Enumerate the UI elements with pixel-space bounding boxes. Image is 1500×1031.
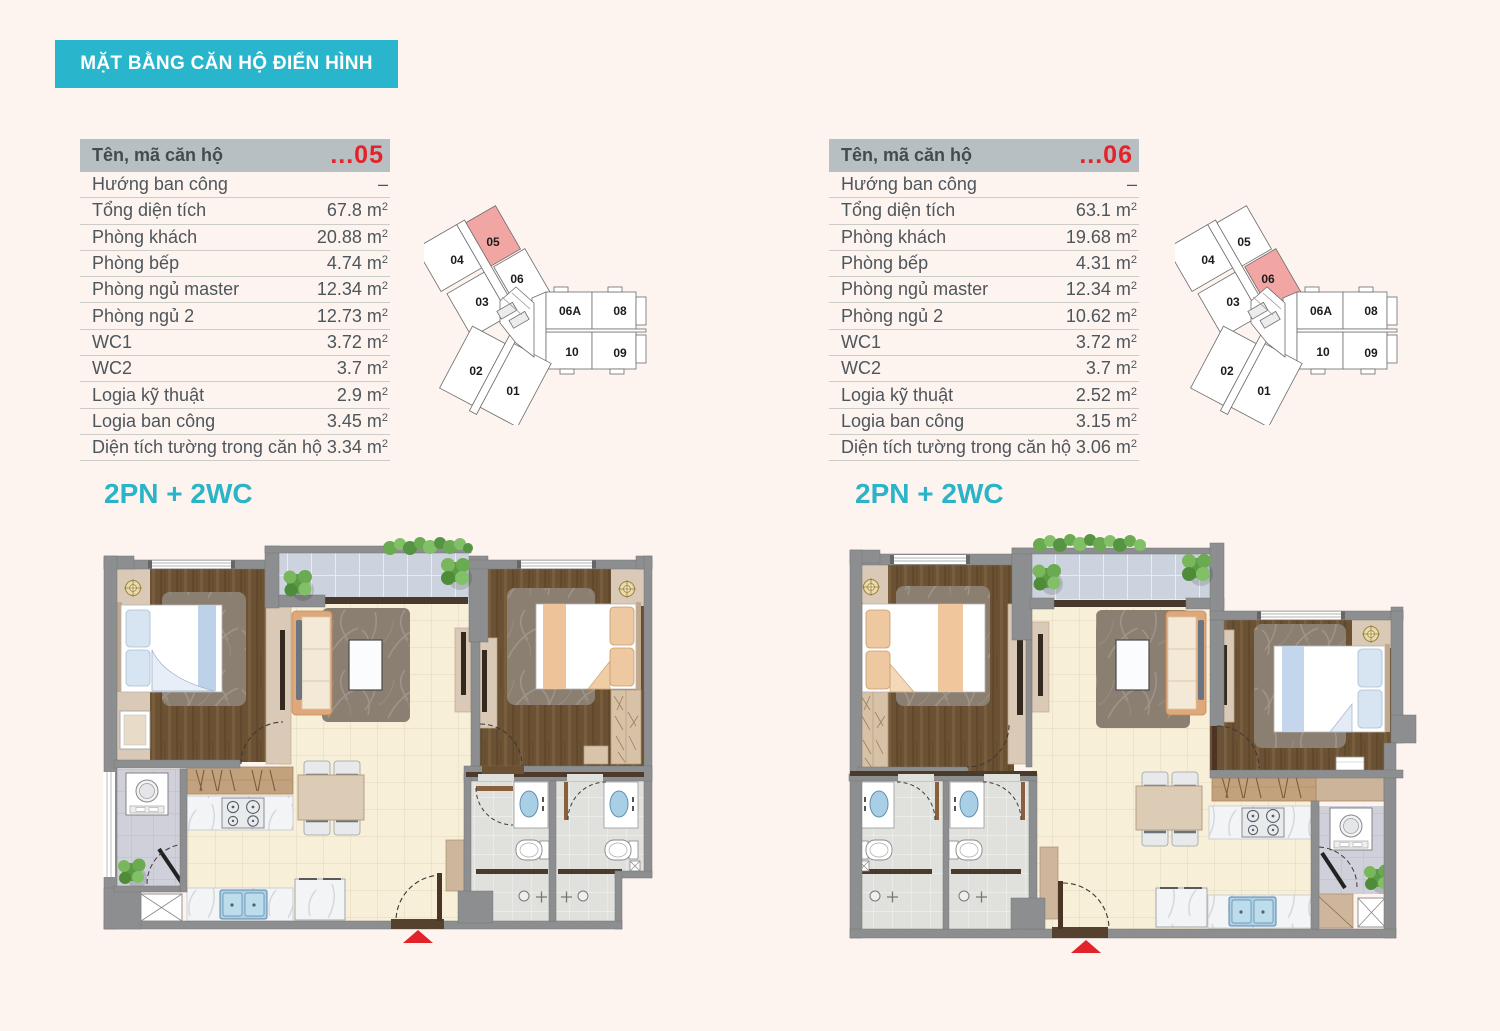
svg-text:04: 04 (1201, 253, 1215, 267)
svg-text:10: 10 (1316, 345, 1330, 359)
svg-text:10: 10 (565, 345, 579, 359)
svg-text:04: 04 (450, 253, 464, 267)
svg-text:03: 03 (1226, 295, 1240, 309)
svg-text:06: 06 (1261, 272, 1275, 286)
svg-text:09: 09 (1364, 346, 1378, 360)
svg-text:09: 09 (613, 346, 627, 360)
svg-text:06A: 06A (1310, 304, 1332, 318)
svg-text:02: 02 (1220, 364, 1234, 378)
svg-text:01: 01 (506, 384, 520, 398)
svg-text:06: 06 (510, 272, 524, 286)
svg-text:02: 02 (469, 364, 483, 378)
svg-text:06A: 06A (559, 304, 581, 318)
svg-text:05: 05 (1237, 235, 1251, 249)
svg-text:08: 08 (613, 304, 627, 318)
svg-text:01: 01 (1257, 384, 1271, 398)
svg-text:03: 03 (475, 295, 489, 309)
svg-text:05: 05 (486, 235, 500, 249)
svg-text:08: 08 (1364, 304, 1378, 318)
